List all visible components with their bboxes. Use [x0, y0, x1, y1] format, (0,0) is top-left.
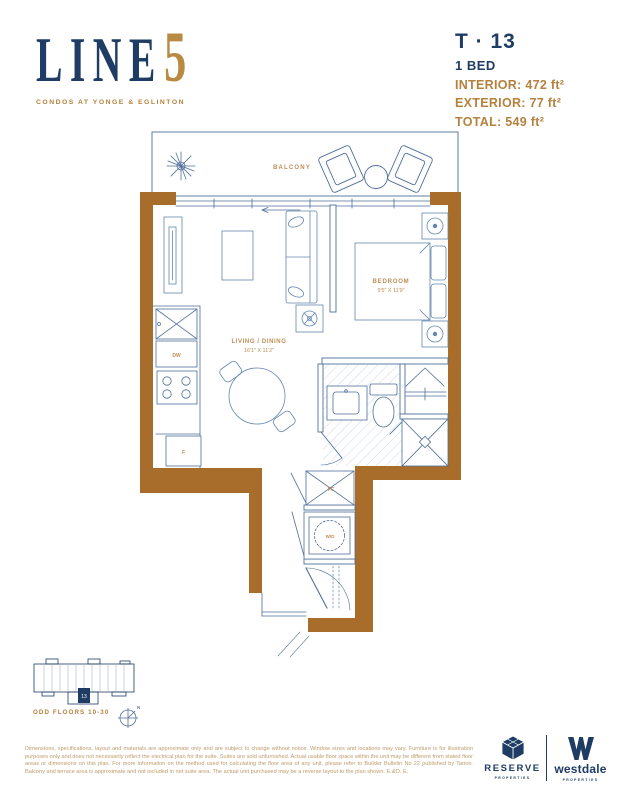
westdale-name: westdale	[552, 762, 609, 776]
balcony-chair-left	[318, 145, 365, 194]
logo-five-text: 5	[164, 17, 186, 97]
tv-unit	[164, 217, 182, 293]
disclaimer-text: Dimensions, specifications, layout and m…	[25, 746, 473, 776]
unit-interior-area: INTERIOR: 472 ft²	[455, 78, 564, 92]
living-dimensions: 16'1" X 11'2"	[244, 348, 274, 354]
westdale-logo: westdale PROPERTIES	[552, 734, 609, 782]
logo-tagline: CONDOS AT YONGE & EGLINTON	[36, 99, 279, 106]
reserve-logo: RESERVE PROPERTIES	[484, 734, 541, 782]
stove	[157, 371, 197, 404]
fan-coil-label: FC	[328, 487, 335, 493]
floorplan-sheet: LINE5 CONDOS AT YONGE & EGLINTON T · 13 …	[0, 0, 618, 800]
unit-exterior-area: EXTERIOR: 77 ft²	[455, 96, 564, 110]
balcony-label: BALCONY	[273, 165, 311, 171]
highlighted-unit-number: 13	[81, 694, 87, 700]
side-table-plant	[296, 305, 323, 332]
washer-dryer	[292, 512, 355, 559]
unit-walls	[140, 192, 461, 632]
dining-table	[218, 360, 297, 434]
bedroom-label: BEDROOM	[373, 279, 410, 285]
keyplan: 13 N	[28, 654, 144, 738]
balcony-chair-right	[387, 145, 434, 194]
kitchen-sink	[156, 309, 197, 339]
reserve-sub: PROPERTIES	[484, 776, 541, 780]
washer-dryer-label: W/D	[326, 534, 336, 539]
logo-line-text: LINE	[36, 24, 163, 95]
slider-door-arrow-icon	[262, 208, 300, 213]
nightstand-bottom	[422, 321, 448, 347]
line5-logo: LINE5 CONDOS AT YONGE & EGLINTON	[36, 28, 279, 106]
compass-north-label: N	[137, 705, 140, 710]
building-footprint: 13	[34, 659, 134, 704]
entry-door	[262, 566, 350, 657]
closet	[406, 368, 446, 400]
unit-info: T · 13 1 BED INTERIOR: 472 ft² EXTERIOR:…	[455, 30, 564, 129]
westdale-w-icon	[552, 734, 609, 761]
balcony-plant-icon	[167, 152, 195, 180]
window-wall	[176, 199, 430, 213]
vanity-sink	[327, 386, 367, 420]
living-label: LIVING / DINING	[231, 339, 286, 345]
reserve-name: RESERVE	[484, 763, 541, 774]
unit-type: 1 BED	[455, 58, 564, 73]
kitchen	[153, 306, 201, 468]
balcony	[152, 132, 458, 196]
fan-coil-closet	[291, 471, 354, 505]
balcony-table	[365, 166, 388, 189]
westdale-sub: PROPERTIES	[552, 778, 609, 782]
fridge-label: F	[182, 450, 185, 456]
floorplan-drawing: BALCONY BEDROOM 9'5" X 11'9" LIVING / DI…	[125, 120, 475, 660]
logo-divider	[546, 735, 547, 781]
unit-code: T · 13	[455, 30, 564, 54]
coffee-table	[222, 231, 253, 280]
logo-wordmark: LINE5	[36, 28, 186, 90]
dishwasher-label: DW	[172, 353, 181, 359]
compass-icon: N	[118, 705, 140, 728]
bedroom-dimensions: 9'5" X 11'9"	[377, 288, 404, 294]
sofa	[286, 211, 317, 303]
developer-logos: RESERVE PROPERTIES westdale PROPERTIES	[484, 734, 609, 782]
keyplan-floors-caption: ODD FLOORS 10-30	[33, 709, 109, 716]
nightstand-top	[422, 213, 448, 239]
reserve-cube-icon	[484, 734, 541, 761]
